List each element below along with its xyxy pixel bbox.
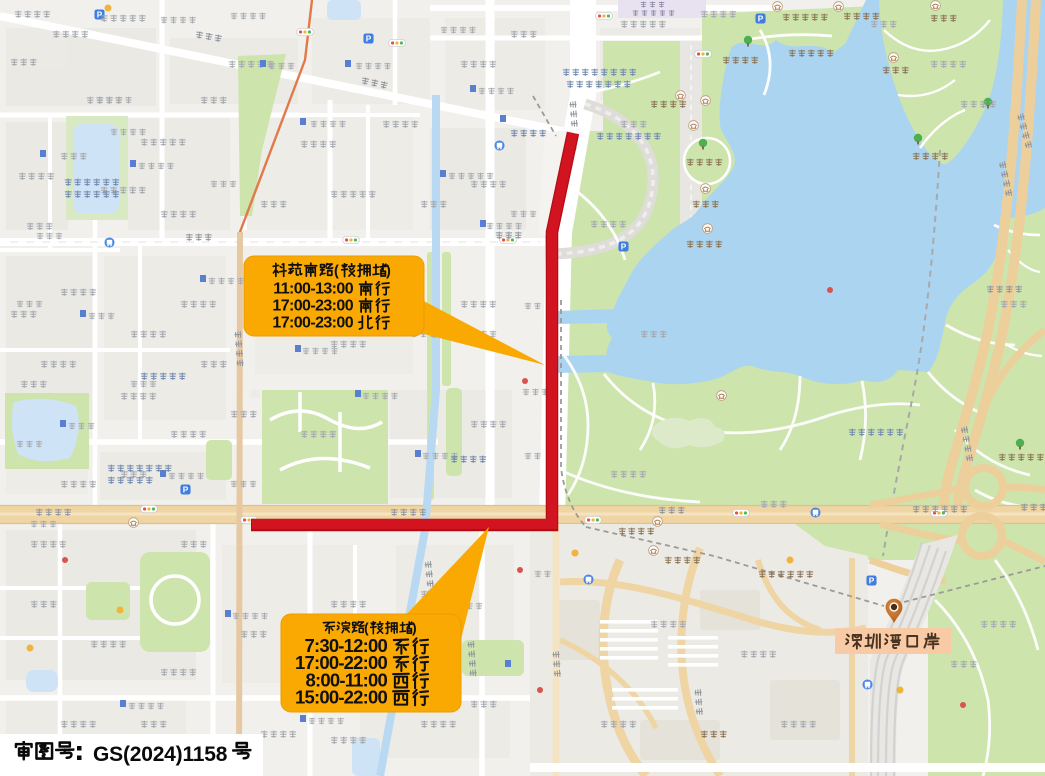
svg-text:15:00-22:00: 15:00-22:00 xyxy=(295,687,388,708)
svg-text:GS(2024)1158: GS(2024)1158 xyxy=(93,743,228,766)
svg-text:17:00-23:00: 17:00-23:00 xyxy=(272,315,353,332)
svg-text:11:00-13:00: 11:00-13:00 xyxy=(273,281,353,298)
svg-text:(: ( xyxy=(364,620,369,636)
svg-text:17:00-23:00: 17:00-23:00 xyxy=(272,298,353,315)
svg-text:(: ( xyxy=(334,264,339,280)
svg-text:): ) xyxy=(386,264,391,280)
svg-text:): ) xyxy=(412,620,417,636)
